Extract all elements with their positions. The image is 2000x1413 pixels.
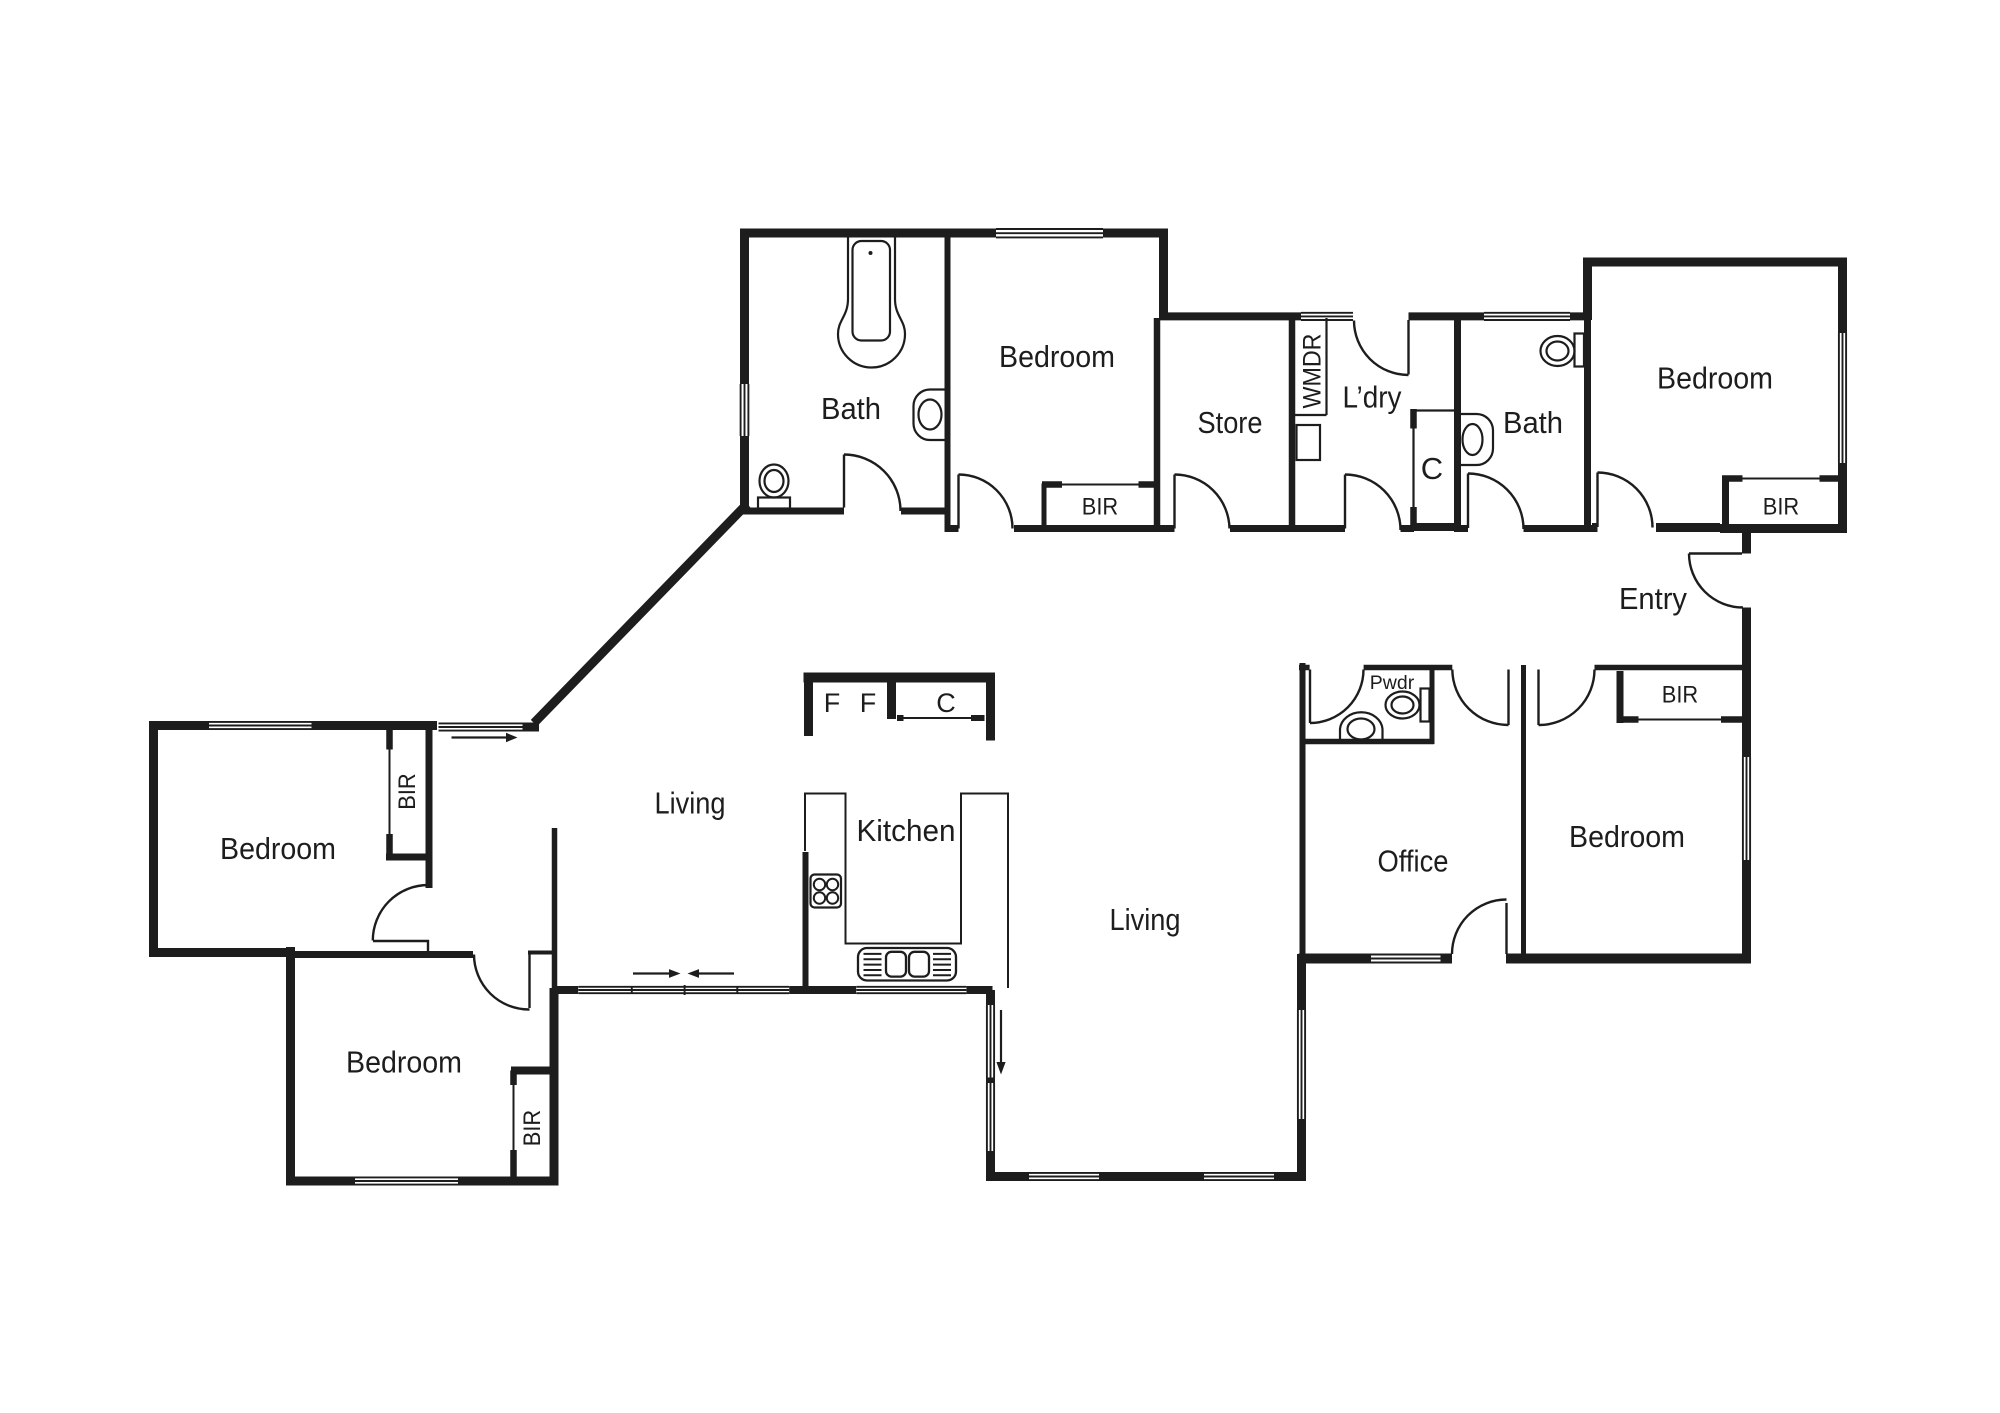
svg-text:Bedroom: Bedroom xyxy=(1657,361,1773,396)
svg-text:Kitchen: Kitchen xyxy=(857,813,956,848)
svg-text:BIR: BIR xyxy=(1662,682,1699,709)
svg-text:Bath: Bath xyxy=(1503,405,1563,440)
svg-text:Entry: Entry xyxy=(1619,581,1687,616)
svg-text:Pwdr: Pwdr xyxy=(1370,672,1415,694)
svg-text:F: F xyxy=(824,688,841,718)
svg-text:Living: Living xyxy=(1110,902,1181,937)
svg-text:BIR: BIR xyxy=(1082,494,1119,521)
svg-text:BIR: BIR xyxy=(394,773,421,810)
svg-text:F: F xyxy=(860,688,877,718)
svg-text:C: C xyxy=(1421,451,1443,486)
svg-text:Office: Office xyxy=(1378,844,1449,879)
svg-text:BIR: BIR xyxy=(519,1110,546,1147)
svg-text:Living: Living xyxy=(655,786,726,821)
svg-text:L’dry: L’dry xyxy=(1343,380,1402,415)
svg-text:Bath: Bath xyxy=(821,391,881,426)
svg-text:Store: Store xyxy=(1198,405,1263,440)
svg-text:WMDR: WMDR xyxy=(1299,334,1327,409)
svg-text:BIR: BIR xyxy=(1763,494,1800,521)
svg-text:Bedroom: Bedroom xyxy=(1569,819,1685,854)
svg-text:Bedroom: Bedroom xyxy=(999,339,1115,374)
svg-text:Bedroom: Bedroom xyxy=(346,1045,462,1080)
svg-text:C: C xyxy=(936,688,956,718)
svg-text:Bedroom: Bedroom xyxy=(220,831,336,866)
